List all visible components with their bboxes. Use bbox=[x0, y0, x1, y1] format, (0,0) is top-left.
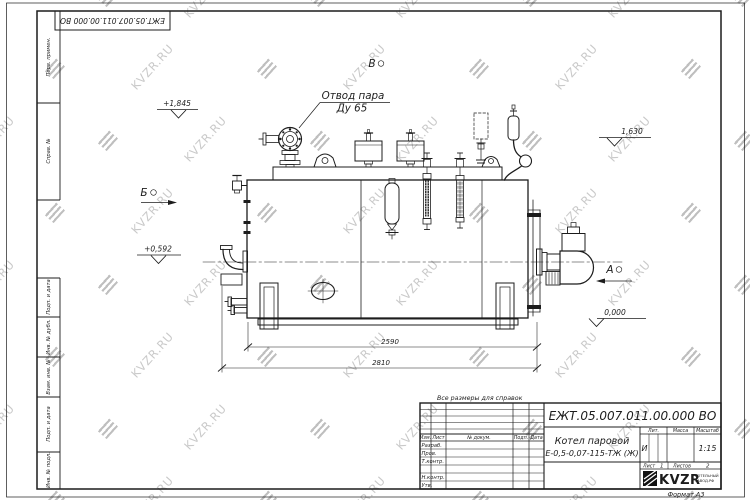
margin-label: Инв. № подл. bbox=[46, 452, 52, 488]
row-prov: Пров. bbox=[422, 451, 437, 457]
steam-outlet-note: Отвод пара bbox=[322, 90, 385, 102]
boiler-shell bbox=[247, 180, 528, 318]
lifting-lug-left bbox=[314, 154, 336, 167]
level-left-text: +0,592 bbox=[144, 245, 172, 254]
steam-outlet-note: Ду 65 bbox=[336, 103, 368, 115]
col-izm: Изм. bbox=[420, 435, 431, 441]
level-gauge-column bbox=[456, 167, 464, 228]
level-mark-zero: 0,000 bbox=[589, 308, 646, 327]
view-v-text: В bbox=[368, 58, 375, 70]
title-block: Все размеры для справок Изм. Лист № доку… bbox=[420, 395, 721, 499]
level-mark-top: +1,845 bbox=[157, 99, 198, 118]
format-label: Формат А3 bbox=[667, 491, 704, 499]
lit-value: И bbox=[642, 444, 648, 453]
sheet-label: Лист bbox=[642, 464, 655, 470]
level-top-text: +1,845 bbox=[163, 99, 191, 108]
margin-label: Перв. примен. bbox=[46, 38, 52, 77]
col-data: Дата bbox=[529, 435, 542, 441]
row-nkontr: Н.контр. bbox=[422, 475, 445, 481]
burner-assembly bbox=[537, 223, 594, 286]
margin-label: Взам. инв. № bbox=[46, 359, 52, 394]
margin-columns: Перв. примен. Справ. № Подп. и дата Инв.… bbox=[37, 11, 60, 489]
gauge-bottle bbox=[505, 105, 532, 180]
engineering-drawing: Перв. примен. Справ. № Подп. и дата Инв.… bbox=[0, 0, 750, 500]
separator-vessel bbox=[385, 179, 399, 240]
margin-label: Справ. № bbox=[46, 138, 52, 163]
product-name: Котел паровой bbox=[555, 436, 630, 447]
scale-header: Масштаб bbox=[696, 428, 719, 434]
dashed-outline-item bbox=[474, 113, 488, 163]
logo-subtext: КОТЕЛЬНЫЙ bbox=[695, 473, 719, 478]
level-mark-right: 1,630 bbox=[599, 127, 651, 146]
level-mark-left: +0,592 bbox=[137, 245, 181, 264]
kvzr-logo: KVZR КОТЕЛЬНЫЙ ЗАВОД.РФ bbox=[643, 471, 719, 489]
lifting-lug-right bbox=[482, 157, 500, 168]
level-gauge-column bbox=[423, 167, 431, 230]
row-utv: Утв. bbox=[422, 483, 433, 489]
col-ndocum: № докум. bbox=[466, 435, 491, 441]
level-zero-text: 0,000 bbox=[604, 308, 626, 317]
product-type: Е-0,5-0,07-115-ТЖ (Ж) bbox=[545, 449, 638, 458]
dimension-2590: 2590 bbox=[244, 322, 541, 373]
shell-stud bbox=[244, 200, 251, 203]
dim-2810-text: 2810 bbox=[372, 359, 390, 367]
safety-valve-box bbox=[397, 130, 424, 168]
sheets-label: Листов bbox=[672, 464, 691, 470]
dim-2590-text: 2590 bbox=[381, 338, 399, 346]
top-platform bbox=[273, 167, 502, 180]
view-b-text: Б bbox=[140, 187, 147, 199]
reference-note: Все размеры для справок bbox=[437, 395, 523, 402]
level-right-text: 1,630 bbox=[621, 127, 643, 136]
manhole bbox=[308, 279, 338, 303]
rear-tube-sheet bbox=[527, 200, 541, 316]
shell-stud bbox=[244, 231, 251, 234]
view-a-text: А bbox=[605, 264, 613, 276]
skid-frame bbox=[258, 283, 518, 329]
col-podp: Подп. bbox=[514, 435, 529, 441]
shell-stud bbox=[244, 221, 251, 224]
top-stamp: ЕЖТ.05.007.011.00.000 ВО bbox=[55, 11, 170, 30]
drain-stubs bbox=[225, 297, 247, 315]
view-label-a: А bbox=[596, 264, 632, 284]
sheets-value: 2 bbox=[706, 464, 710, 470]
platform-fitting bbox=[455, 153, 465, 167]
mass-header: Масса bbox=[673, 428, 688, 434]
scale-value: 1:15 bbox=[699, 444, 717, 453]
margin-label: Инв. № дубл. bbox=[46, 319, 52, 355]
view-label-b: Б bbox=[140, 187, 177, 205]
row-razrab: Разраб. bbox=[422, 443, 442, 449]
col-list: Лист bbox=[431, 435, 444, 441]
doc-number: ЕЖТ.05.007.011.00.000 ВО bbox=[549, 409, 717, 423]
row-tkontr: Т.контр. bbox=[422, 459, 444, 465]
boiler-drawing bbox=[203, 105, 622, 329]
logo-subtext: ЗАВОД.РФ bbox=[695, 479, 714, 483]
top-stamp-number: ЕЖТ.05.007.011.00.000 ВО bbox=[60, 16, 165, 25]
view-label-v: В bbox=[368, 58, 383, 70]
margin-label: Подп. и дата bbox=[46, 406, 52, 441]
front-top-valve bbox=[233, 176, 248, 194]
margin-label: Подп. и дата bbox=[46, 279, 52, 314]
lit-header: Лит. bbox=[647, 428, 659, 434]
sheet-value: 1 bbox=[660, 464, 664, 470]
steam-outlet-valve bbox=[259, 128, 302, 168]
safety-valve-box bbox=[355, 130, 382, 168]
feed-elbow bbox=[221, 246, 248, 286]
drawing-sheet: KVZR.RUKVZR.RUKVZR.RUKVZR.RUKVZR.RUKVZR.… bbox=[0, 0, 750, 500]
